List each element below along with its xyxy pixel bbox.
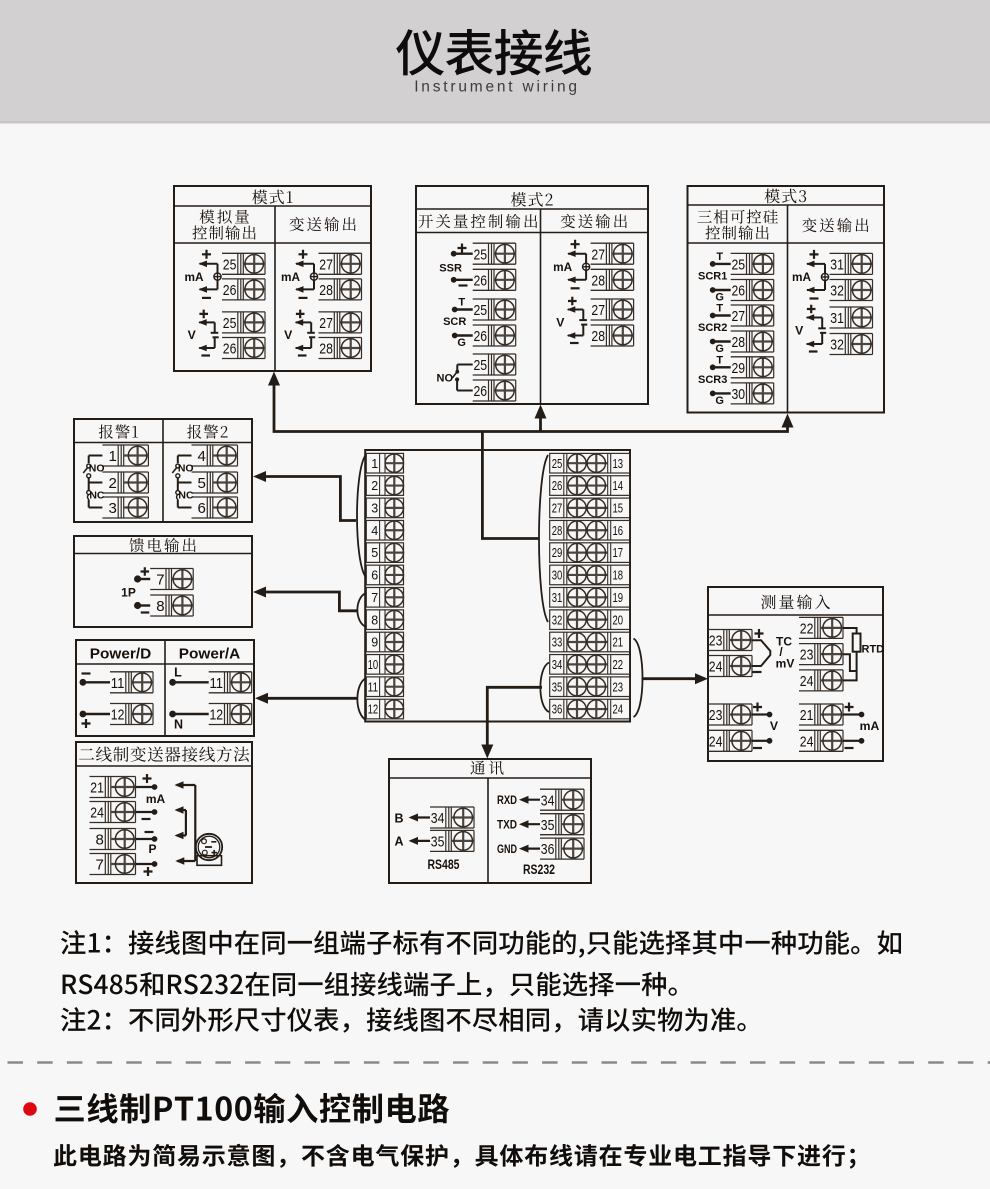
svg-text:32: 32 — [552, 613, 563, 627]
svg-text:23: 23 — [800, 647, 814, 664]
svg-text:T: T — [458, 297, 465, 309]
svg-text:17: 17 — [613, 546, 624, 560]
svg-text:24: 24 — [800, 733, 814, 750]
svg-text:RS232: RS232 — [523, 862, 555, 877]
svg-text:24: 24 — [800, 673, 814, 690]
svg-text:34: 34 — [431, 810, 445, 827]
svg-text:28: 28 — [732, 334, 746, 351]
svg-text:T: T — [716, 354, 723, 366]
svg-text:4: 4 — [371, 524, 378, 538]
svg-text:2: 2 — [108, 475, 116, 492]
svg-text:10: 10 — [368, 658, 379, 672]
svg-text:25: 25 — [474, 302, 488, 319]
svg-text:G: G — [715, 343, 724, 355]
svg-text:32: 32 — [830, 283, 844, 300]
svg-text:26: 26 — [223, 282, 237, 299]
svg-text:mA: mA — [792, 270, 811, 284]
svg-text:V: V — [556, 315, 565, 329]
svg-text:mA: mA — [860, 719, 880, 733]
svg-text:3: 3 — [108, 500, 116, 517]
svg-text:26: 26 — [732, 283, 746, 300]
svg-text:34: 34 — [541, 792, 555, 809]
svg-text:1: 1 — [108, 448, 116, 465]
svg-text:NO: NO — [178, 462, 194, 474]
svg-text:SCR2: SCR2 — [698, 322, 727, 334]
svg-text:V: V — [795, 324, 804, 338]
svg-text:29: 29 — [552, 546, 563, 560]
svg-text:SCR: SCR — [443, 316, 466, 328]
svg-text:SCR3: SCR3 — [698, 374, 727, 386]
svg-text:P: P — [148, 842, 156, 856]
svg-text:26: 26 — [223, 341, 237, 358]
svg-text:25: 25 — [474, 357, 488, 374]
svg-text:32: 32 — [830, 337, 844, 354]
svg-text:GND: GND — [497, 842, 517, 856]
svg-text:20: 20 — [613, 613, 624, 627]
svg-text:28: 28 — [319, 341, 333, 358]
svg-text:25: 25 — [474, 246, 488, 263]
svg-text:7: 7 — [96, 857, 104, 874]
svg-text:21: 21 — [90, 780, 104, 797]
svg-text:G: G — [715, 395, 724, 407]
svg-text:Instrument wiring: Instrument wiring — [414, 79, 580, 96]
svg-text:28: 28 — [319, 282, 333, 299]
svg-text:NC: NC — [178, 489, 194, 501]
svg-text:31: 31 — [830, 310, 844, 327]
svg-text:11: 11 — [111, 675, 125, 692]
svg-text:NO: NO — [437, 373, 454, 385]
svg-text:30: 30 — [552, 569, 563, 583]
svg-text:28: 28 — [591, 328, 605, 345]
svg-text:13: 13 — [613, 457, 624, 471]
svg-text:SCR1: SCR1 — [698, 270, 727, 282]
svg-text:26: 26 — [474, 328, 488, 345]
svg-text:26: 26 — [474, 272, 488, 289]
svg-text:27: 27 — [732, 308, 746, 325]
svg-text:T: T — [716, 251, 723, 263]
svg-text:27: 27 — [552, 502, 563, 516]
svg-text:8: 8 — [371, 613, 378, 627]
svg-text:mA: mA — [184, 270, 203, 284]
svg-text:30: 30 — [732, 386, 746, 403]
svg-text:21: 21 — [613, 636, 624, 650]
svg-text:24: 24 — [709, 733, 723, 750]
svg-text:3: 3 — [371, 502, 378, 516]
svg-text:2: 2 — [371, 479, 378, 493]
svg-text:SSR: SSR — [439, 263, 462, 275]
svg-text:1P: 1P — [121, 586, 136, 600]
svg-text:A: A — [394, 835, 403, 849]
svg-text:28: 28 — [552, 524, 563, 538]
svg-text:G: G — [457, 337, 466, 349]
svg-text:RTD: RTD — [862, 644, 885, 656]
svg-text:36: 36 — [541, 841, 555, 858]
svg-text:31: 31 — [552, 591, 563, 605]
svg-text:16: 16 — [613, 524, 624, 538]
svg-text:mA: mA — [146, 792, 166, 806]
svg-text:22: 22 — [800, 621, 814, 638]
svg-text:14: 14 — [613, 479, 624, 493]
svg-text:29: 29 — [732, 360, 746, 377]
svg-text:28: 28 — [591, 272, 605, 289]
svg-text:27: 27 — [591, 302, 605, 319]
svg-text:mV: mV — [776, 657, 795, 671]
svg-text:RS485: RS485 — [428, 857, 460, 872]
svg-text:24: 24 — [709, 659, 723, 676]
svg-text:23: 23 — [709, 633, 723, 650]
svg-text:Power/D: Power/D — [90, 647, 152, 663]
svg-text:7: 7 — [371, 591, 378, 605]
svg-text:N: N — [174, 718, 183, 732]
svg-text:1: 1 — [371, 457, 378, 471]
svg-text:35: 35 — [552, 680, 563, 694]
svg-text:25: 25 — [732, 257, 746, 274]
svg-text:V: V — [284, 328, 293, 342]
svg-text:35: 35 — [431, 834, 445, 851]
svg-text:8: 8 — [156, 598, 164, 615]
svg-text:NO: NO — [89, 462, 105, 474]
svg-text:27: 27 — [319, 315, 333, 332]
svg-text:T: T — [716, 303, 723, 315]
svg-text:V: V — [770, 719, 779, 733]
svg-text:11: 11 — [210, 675, 224, 692]
svg-text:18: 18 — [613, 569, 624, 583]
svg-text:12: 12 — [111, 707, 125, 724]
svg-text:12: 12 — [368, 703, 379, 717]
svg-text:34: 34 — [552, 658, 563, 672]
svg-text:L: L — [174, 666, 182, 680]
svg-text:Power/A: Power/A — [179, 647, 241, 663]
svg-text:6: 6 — [371, 569, 378, 583]
svg-text:25: 25 — [552, 457, 563, 471]
svg-text:21: 21 — [800, 707, 814, 724]
svg-text:36: 36 — [552, 703, 563, 717]
svg-text:7: 7 — [156, 572, 164, 589]
svg-text:RXD: RXD — [497, 793, 517, 807]
svg-text:25: 25 — [223, 256, 237, 273]
svg-text:33: 33 — [552, 636, 563, 650]
svg-text:15: 15 — [613, 502, 624, 516]
svg-text:19: 19 — [613, 591, 624, 605]
svg-text:24: 24 — [90, 805, 104, 822]
svg-text:NC: NC — [89, 489, 105, 501]
svg-text:mA: mA — [281, 270, 300, 284]
svg-text:12: 12 — [210, 707, 224, 724]
svg-text:26: 26 — [474, 383, 488, 400]
svg-text:35: 35 — [541, 817, 555, 834]
svg-text:23: 23 — [709, 707, 723, 724]
svg-text:31: 31 — [830, 257, 844, 274]
svg-text:5: 5 — [198, 475, 206, 492]
svg-text:26: 26 — [552, 479, 563, 493]
svg-text:27: 27 — [319, 256, 333, 273]
svg-text:mA: mA — [553, 260, 572, 274]
svg-text:25: 25 — [223, 315, 237, 332]
svg-text:V: V — [188, 328, 197, 342]
svg-text:8: 8 — [96, 832, 104, 849]
svg-text:24: 24 — [613, 703, 624, 717]
svg-text:23: 23 — [613, 680, 624, 694]
svg-text:6: 6 — [198, 500, 206, 517]
svg-text:B: B — [394, 811, 403, 825]
svg-text:4: 4 — [198, 448, 206, 465]
svg-text:11: 11 — [368, 680, 379, 694]
svg-text:TXD: TXD — [497, 818, 517, 832]
svg-text:22: 22 — [613, 658, 624, 672]
svg-text:9: 9 — [371, 636, 378, 650]
svg-text:5: 5 — [371, 546, 378, 560]
svg-text:27: 27 — [591, 246, 605, 263]
